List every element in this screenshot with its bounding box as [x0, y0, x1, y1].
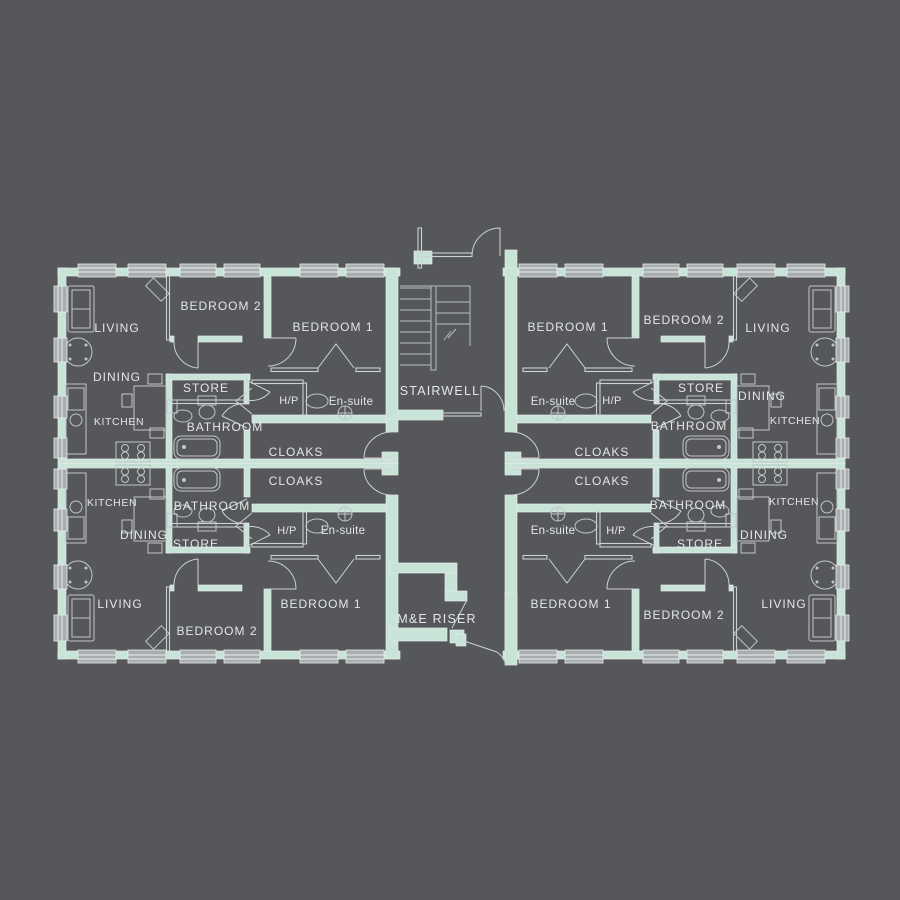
room-label-bl-bedroom2: BEDROOM 2 — [176, 624, 257, 638]
room-label-tr-bathroom: BATHROOM — [651, 419, 727, 433]
room-label-tr-dining: DINING — [738, 389, 786, 403]
room-label-tl-cloaks: CLOAKS — [269, 445, 324, 459]
entrance-jamb — [456, 634, 466, 646]
room-label-tr-ensuite: En-suite — [531, 396, 576, 408]
door-stairwell-lobby — [481, 386, 504, 411]
room-label-me-riser: M&E RISER — [397, 612, 477, 626]
room-label-tl-dining: DINING — [93, 370, 141, 384]
room-label-br-dining: DINING — [740, 528, 788, 542]
room-label-br-bedroom2: BEDROOM 2 — [643, 608, 724, 622]
riser-wall-top — [390, 563, 457, 573]
room-label-tr-hp: H/P — [602, 395, 622, 407]
door-main-entrance-top — [472, 228, 500, 256]
apartment-bottom-right — [503, 464, 849, 664]
stairwell-screen — [443, 413, 481, 416]
room-label-br-bathroom: BATHROOM — [650, 498, 726, 512]
room-label-tr-bedroom1: BEDROOM 1 — [527, 320, 608, 334]
room-label-tl-living: LIVING — [94, 321, 139, 335]
room-label-bl-living: LIVING — [97, 597, 142, 611]
room-label-br-living: LIVING — [761, 597, 806, 611]
floor-plan-drawing — [0, 0, 900, 900]
room-label-tl-bathroom: BATHROOM — [187, 420, 263, 434]
room-label-br-store: STORE — [677, 537, 723, 551]
stair-break-mark — [444, 329, 456, 340]
apartment-top-right — [503, 264, 849, 464]
stairwell-wall-bottom — [398, 410, 443, 420]
riser-wall-right — [445, 573, 457, 593]
room-label-tl-hp: H/P — [279, 395, 299, 407]
room-label-stairwell: STAIRWELL — [400, 384, 481, 398]
lobby-wall-right — [505, 593, 517, 665]
room-label-bl-bathroom: BATHROOM — [174, 499, 250, 513]
room-label-bl-kitchen: KITCHEN — [87, 497, 137, 509]
vestibule-wall-right — [505, 250, 517, 268]
room-label-tr-store: STORE — [678, 381, 724, 395]
room-label-tr-living: LIVING — [745, 321, 790, 335]
room-label-bl-store: STORE — [173, 537, 219, 551]
room-label-tr-cloaks: CLOAKS — [575, 445, 630, 459]
room-label-tr-kitchen: KITCHEN — [770, 415, 820, 427]
floor-plan-page: LIVING BEDROOM 2 BEDROOM 1 DINING STORE … — [0, 0, 900, 900]
room-label-bl-cloaks: CLOAKS — [269, 474, 324, 488]
room-label-tl-ensuite: En-suite — [329, 396, 374, 408]
stairs — [400, 286, 470, 370]
room-label-br-cloaks: CLOAKS — [575, 474, 630, 488]
room-label-tl-store: STORE — [183, 381, 229, 395]
riser-wall-jog — [445, 591, 467, 601]
room-label-bl-dining: DINING — [120, 528, 168, 542]
room-label-tr-bedroom2: BEDROOM 2 — [643, 313, 724, 327]
room-label-br-kitchen: KITCHEN — [769, 496, 819, 508]
room-label-tl-bedroom2: BEDROOM 2 — [180, 299, 261, 313]
room-label-bl-bedroom1: BEDROOM 1 — [280, 597, 361, 611]
room-label-tl-bedroom1: BEDROOM 1 — [292, 320, 373, 334]
door-main-entrance-bottom — [464, 641, 506, 665]
room-label-br-bedroom1: BEDROOM 1 — [530, 597, 611, 611]
riser-wall-bottom — [390, 628, 447, 641]
room-label-bl-ensuite: En-suite — [321, 525, 366, 537]
room-label-bl-hp: H/P — [277, 525, 297, 537]
room-label-tl-kitchen: KITCHEN — [94, 416, 144, 428]
room-label-br-hp: H/P — [606, 525, 626, 537]
room-label-br-ensuite: En-suite — [531, 525, 576, 537]
